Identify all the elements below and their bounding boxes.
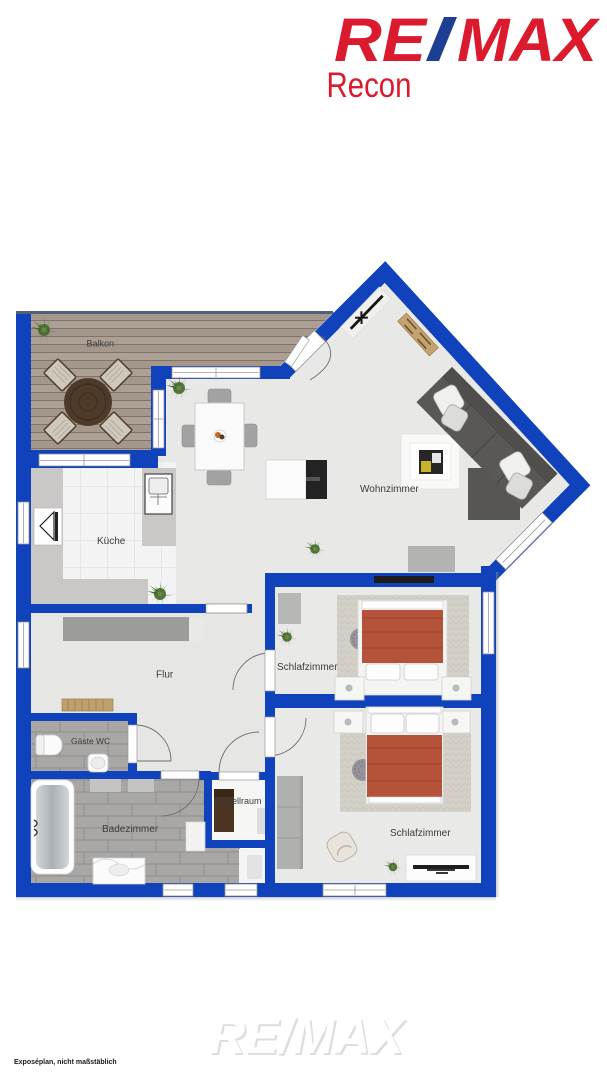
svg-text:Balkon: Balkon (87, 339, 115, 349)
svg-text:Schlafzimmer: Schlafzimmer (390, 828, 451, 839)
svg-text:RE: RE (334, 6, 428, 74)
svg-text:RE/MAX: RE/MAX (209, 1008, 406, 1064)
svg-text:Flur: Flur (156, 670, 174, 681)
svg-text:Recon: Recon (327, 65, 412, 105)
svg-text:Gäste WC: Gäste WC (71, 736, 110, 746)
svg-text:Abstellraum: Abstellraum (214, 796, 262, 806)
svg-text:Badezimmer: Badezimmer (102, 824, 159, 835)
svg-text:MAX: MAX (457, 6, 600, 74)
svg-text:Schlafzimmer: Schlafzimmer (277, 662, 338, 673)
svg-text:Küche: Küche (97, 536, 126, 547)
svg-text:Exposéplan, nicht maßstäblich: Exposéplan, nicht maßstäblich (14, 1059, 117, 1066)
svg-text:Wohnzimmer: Wohnzimmer (360, 484, 419, 495)
